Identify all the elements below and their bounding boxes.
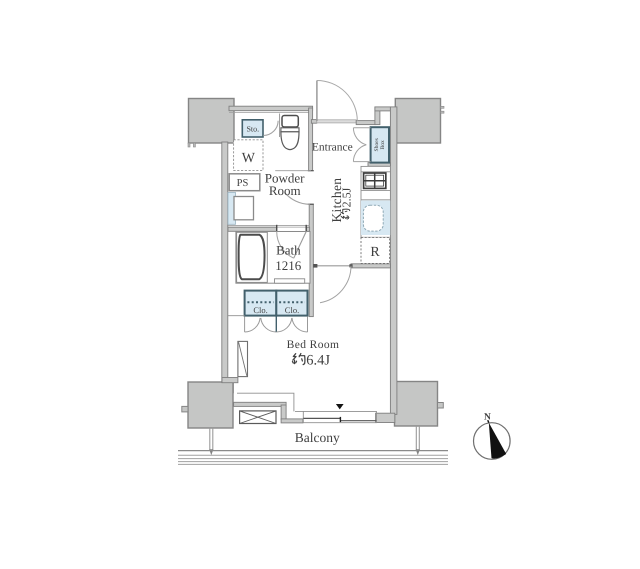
svg-text:Bath: Bath: [276, 243, 301, 258]
svg-text:Box: Box: [380, 140, 386, 150]
svg-text:Balcony: Balcony: [295, 430, 340, 445]
svg-text:Bed Room: Bed Room: [287, 339, 340, 351]
svg-text:1216: 1216: [275, 258, 302, 273]
svg-text:Room: Room: [269, 183, 301, 198]
svg-text:PS: PS: [237, 178, 249, 189]
svg-text:Clo.: Clo.: [285, 305, 299, 315]
svg-text:Entrance: Entrance: [312, 141, 353, 153]
svg-text:Clo.: Clo.: [253, 305, 267, 315]
svg-text:R: R: [370, 245, 380, 260]
svg-text:2.5J: 2.5J: [339, 187, 353, 207]
svg-text:W: W: [242, 151, 256, 166]
svg-text:Sto.: Sto.: [246, 125, 259, 134]
svg-text:6.4J: 6.4J: [306, 353, 330, 369]
svg-text:N: N: [484, 413, 491, 423]
